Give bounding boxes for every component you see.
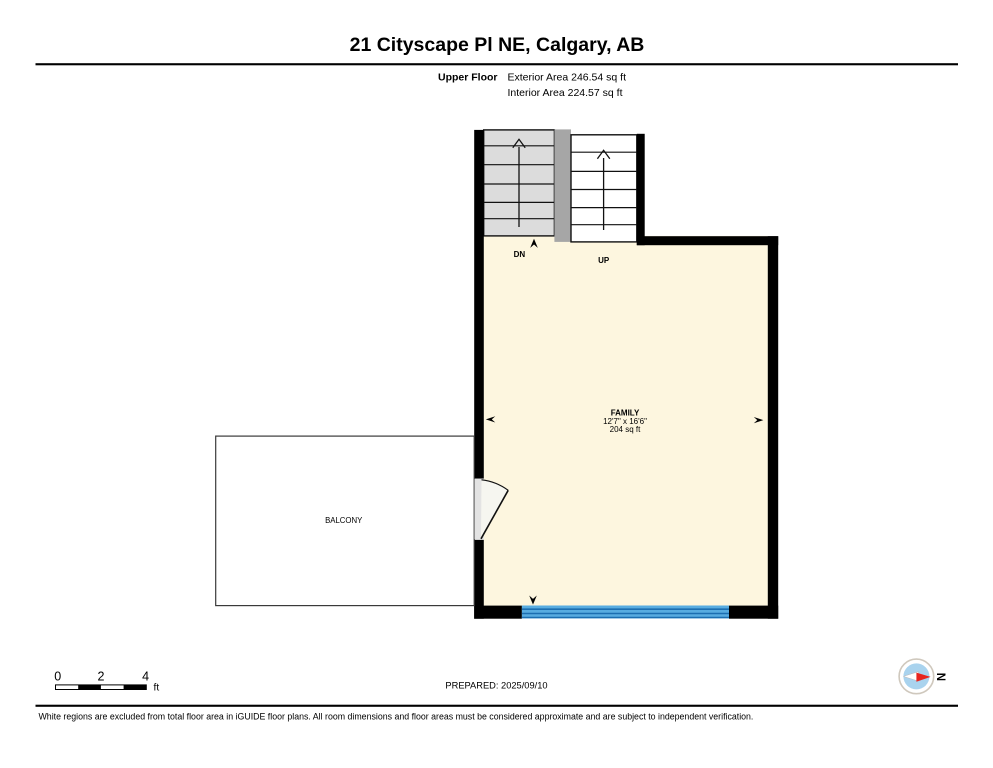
svg-text:21 Cityscape Pl NE, Calgary, A: 21 Cityscape Pl NE, Calgary, AB bbox=[350, 34, 645, 56]
svg-text:White regions are excluded fro: White regions are excluded from total fl… bbox=[39, 711, 754, 721]
svg-text:Interior Area 224.57 sq ft: Interior Area 224.57 sq ft bbox=[508, 87, 623, 99]
svg-text:4: 4 bbox=[142, 670, 149, 684]
svg-text:ft: ft bbox=[154, 682, 160, 693]
svg-text:N: N bbox=[934, 673, 946, 681]
svg-text:2: 2 bbox=[98, 670, 105, 684]
svg-text:DN: DN bbox=[514, 250, 526, 259]
svg-text:Exterior Area 246.54 sq ft: Exterior Area 246.54 sq ft bbox=[508, 71, 627, 83]
svg-text:BALCONY: BALCONY bbox=[325, 516, 363, 525]
svg-text:0: 0 bbox=[54, 670, 61, 684]
svg-text:204 sq ft: 204 sq ft bbox=[610, 425, 641, 434]
svg-text:PREPARED: 2025/09/10: PREPARED: 2025/09/10 bbox=[445, 680, 547, 690]
svg-text:Upper Floor: Upper Floor bbox=[438, 71, 498, 83]
svg-text:UP: UP bbox=[598, 256, 610, 265]
